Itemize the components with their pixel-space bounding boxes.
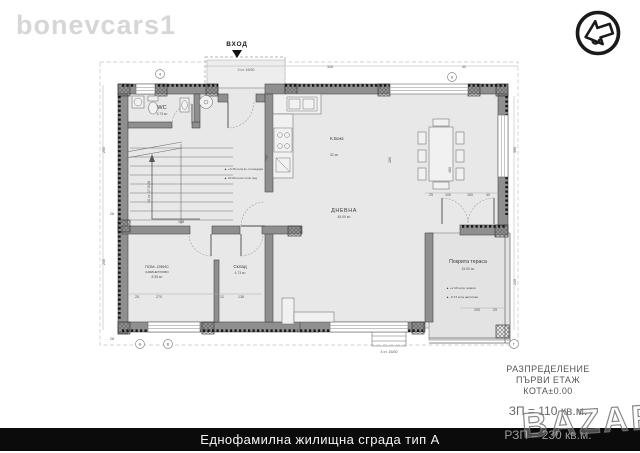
terrace-steps-note: 4 ст. 15/30 <box>380 350 397 354</box>
stairs-note: 16 ст. 17.5/28 <box>147 181 151 203</box>
window <box>148 322 200 332</box>
title-block-line3: КОТА±0.00 <box>462 386 634 397</box>
dim-label: 390 <box>513 147 517 153</box>
site-logo <box>573 8 623 58</box>
room-label-terrace: Покрита тераса <box>449 259 487 265</box>
exterior-steps <box>372 332 406 346</box>
room-label-office-2: КАБИНЕТ/ХОБИ <box>145 270 168 274</box>
window <box>330 322 408 332</box>
dim-label: 12 <box>220 295 224 299</box>
footer-title: Еднофамилна жилищна сграда тип А <box>200 432 439 447</box>
room-label-office: ПОМ.-ОФИС <box>145 264 169 269</box>
dim-label: 180 <box>388 157 392 163</box>
boiler <box>200 96 213 109</box>
room-area-office: 8.36 м² <box>151 275 163 279</box>
ann-label: ▲ +0.15 кота вх. площадка <box>224 167 263 171</box>
entrance-marker: ВХОД <box>226 41 247 58</box>
dim-label: 40 <box>486 193 490 197</box>
room-label-wc: WC <box>157 105 166 111</box>
room-label-kitchen: К.Бокс <box>330 136 345 141</box>
brand-watermark: bonevcars1 <box>16 10 176 41</box>
ann-label: ▲ -0.73 кота настилка <box>446 295 478 299</box>
ann-label: ▲ +2.10 кота тераса <box>446 286 476 290</box>
title-block-line1: РАЗПРЕДЕЛЕНИЕ <box>462 364 634 375</box>
window <box>498 115 508 177</box>
dim-label: 28 <box>110 212 114 216</box>
dim-label: 138 <box>238 295 244 299</box>
dim-label: 25 <box>135 295 139 299</box>
dim-label: 40 <box>462 65 466 69</box>
dim-label: 25 <box>429 193 433 197</box>
room-area-storage: 4.73 м² <box>234 271 246 275</box>
dim-label: 28 <box>110 337 114 341</box>
axis-t-label: В <box>167 342 170 347</box>
room-label-storage: Склад <box>233 264 247 269</box>
room-area-living: 45.00 м² <box>338 215 352 219</box>
dim-label: 245 <box>513 279 517 285</box>
axis-t-label: Б <box>139 342 142 347</box>
window <box>136 84 155 94</box>
title-block-line2: ПЪРВИ ЕТАЖ <box>462 375 634 386</box>
dim-label: 250 <box>102 147 106 153</box>
dim-label: 148 <box>178 220 184 224</box>
room-area-wc: 3.73 м² <box>156 112 168 116</box>
dim-label: 270 <box>156 295 162 299</box>
entry-steps-note: 3 ст. 15/30 <box>237 68 254 72</box>
dim-label: 25 <box>493 308 497 312</box>
bazar-watermark: BAZAR <box>521 397 640 446</box>
dim-label: 200 <box>474 308 480 312</box>
room-label-living: ДНЕВНА <box>331 208 357 214</box>
dim-label: 760 <box>265 155 269 161</box>
dim-label: 328 <box>327 65 333 69</box>
dim-label: 100 <box>445 193 451 197</box>
dim-label: 480 <box>448 167 452 173</box>
ann-label: ▲ ±0.00 кота готов под <box>224 176 257 180</box>
window <box>390 84 468 94</box>
room-area-kitchen: 32 м² <box>330 153 339 157</box>
dim-label: 230 <box>102 259 106 265</box>
room-area-terrace: 15.00 м² <box>462 267 476 271</box>
entrance-label: ВХОД <box>226 41 247 48</box>
dim-label: 100 <box>467 193 473 197</box>
